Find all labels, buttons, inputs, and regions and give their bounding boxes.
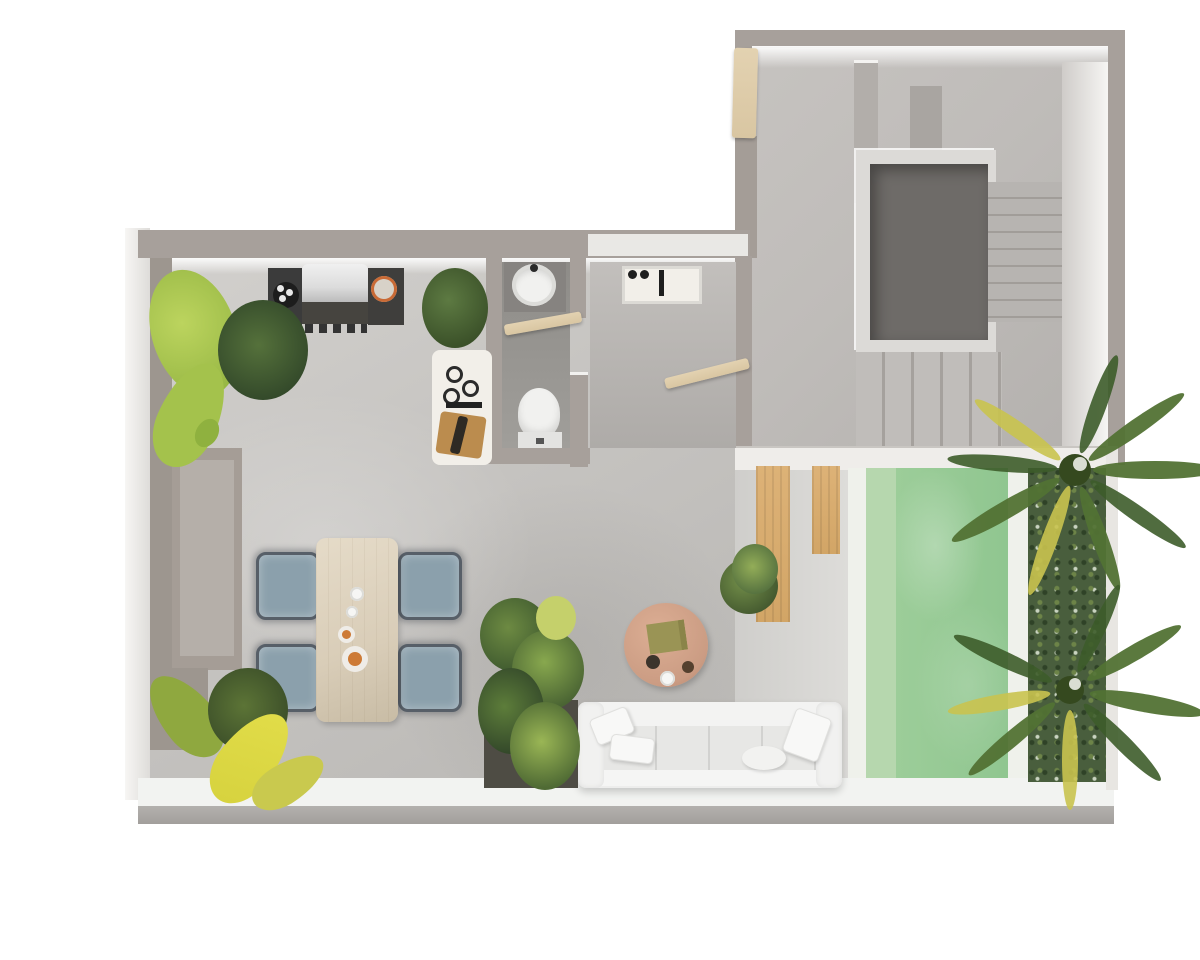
bench-seat (180, 460, 234, 656)
bowl (682, 661, 694, 673)
kitchen-bush (422, 268, 488, 348)
candle-holder (462, 380, 479, 397)
dining-table (316, 538, 398, 722)
entry-door (732, 48, 758, 139)
book-tray (646, 620, 688, 655)
palm-tree-lower (930, 570, 1200, 830)
tap-knob (628, 270, 637, 279)
cup (660, 671, 675, 686)
coffee-table (624, 603, 708, 687)
planter-highlight (536, 596, 576, 640)
cup (350, 587, 364, 601)
bathroom-middle-wall-top (570, 256, 586, 318)
tap-knob (640, 270, 649, 279)
hall-right-wall (736, 256, 752, 318)
fern-plant (218, 300, 308, 400)
food (342, 630, 351, 639)
sofa-front-edge (582, 770, 838, 786)
candle-holder (446, 366, 463, 383)
top-window-segment (588, 234, 748, 256)
small-plate (338, 626, 355, 643)
deck-plank (812, 466, 840, 554)
floor-plan-render (0, 0, 1200, 960)
bowl (646, 655, 660, 669)
dining-chair (256, 552, 320, 620)
console-table (432, 350, 492, 465)
planter-foliage (510, 702, 580, 790)
food (348, 652, 362, 666)
dining-chair (398, 644, 462, 712)
left-outer-wall (125, 228, 150, 800)
toilet-flush-button (536, 438, 544, 444)
stairwell-void (870, 164, 988, 340)
pool-coping-left (848, 468, 866, 778)
staircase-upper-flight (988, 182, 1062, 322)
grill-knobs (305, 324, 367, 333)
basin-tap (530, 264, 538, 272)
bathroom-bottom-wall (486, 448, 590, 464)
sofa (578, 700, 842, 790)
plate (342, 646, 368, 672)
utility-sink-counter (622, 266, 702, 304)
pool-bush-top (732, 544, 778, 594)
dining-chair (398, 552, 462, 620)
pillow (609, 733, 656, 764)
stair-wall-glow (752, 46, 1108, 68)
food-plate (371, 276, 397, 302)
grill-front-panel (302, 302, 368, 324)
oval-cushion (742, 746, 786, 770)
toilet (518, 388, 560, 438)
cup (346, 606, 358, 618)
faucet (659, 270, 664, 296)
utensil (446, 402, 482, 408)
